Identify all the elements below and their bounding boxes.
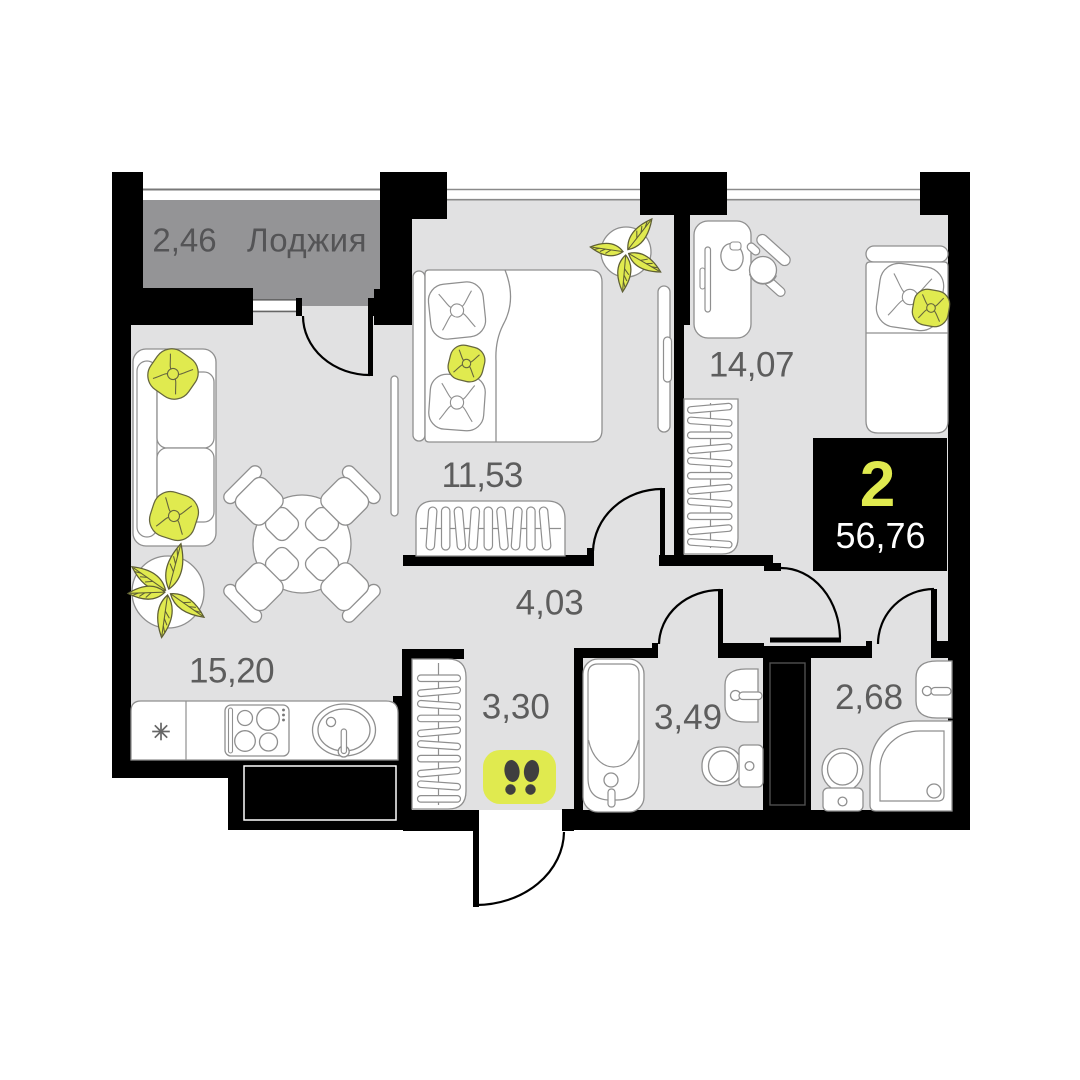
svg-text:4,03: 4,03 <box>516 583 584 622</box>
svg-text:56,76: 56,76 <box>835 515 925 556</box>
svg-text:14,07: 14,07 <box>709 346 794 385</box>
svg-text:2: 2 <box>860 448 896 520</box>
svg-text:11,53: 11,53 <box>442 456 523 495</box>
svg-text:3,30: 3,30 <box>482 687 550 726</box>
svg-text:2,46: 2,46 <box>152 222 216 259</box>
svg-text:Лоджия: Лоджия <box>247 222 367 259</box>
svg-text:2,68: 2,68 <box>835 678 903 717</box>
svg-text:3,49: 3,49 <box>654 698 722 737</box>
svg-text:15,20: 15,20 <box>189 652 274 691</box>
